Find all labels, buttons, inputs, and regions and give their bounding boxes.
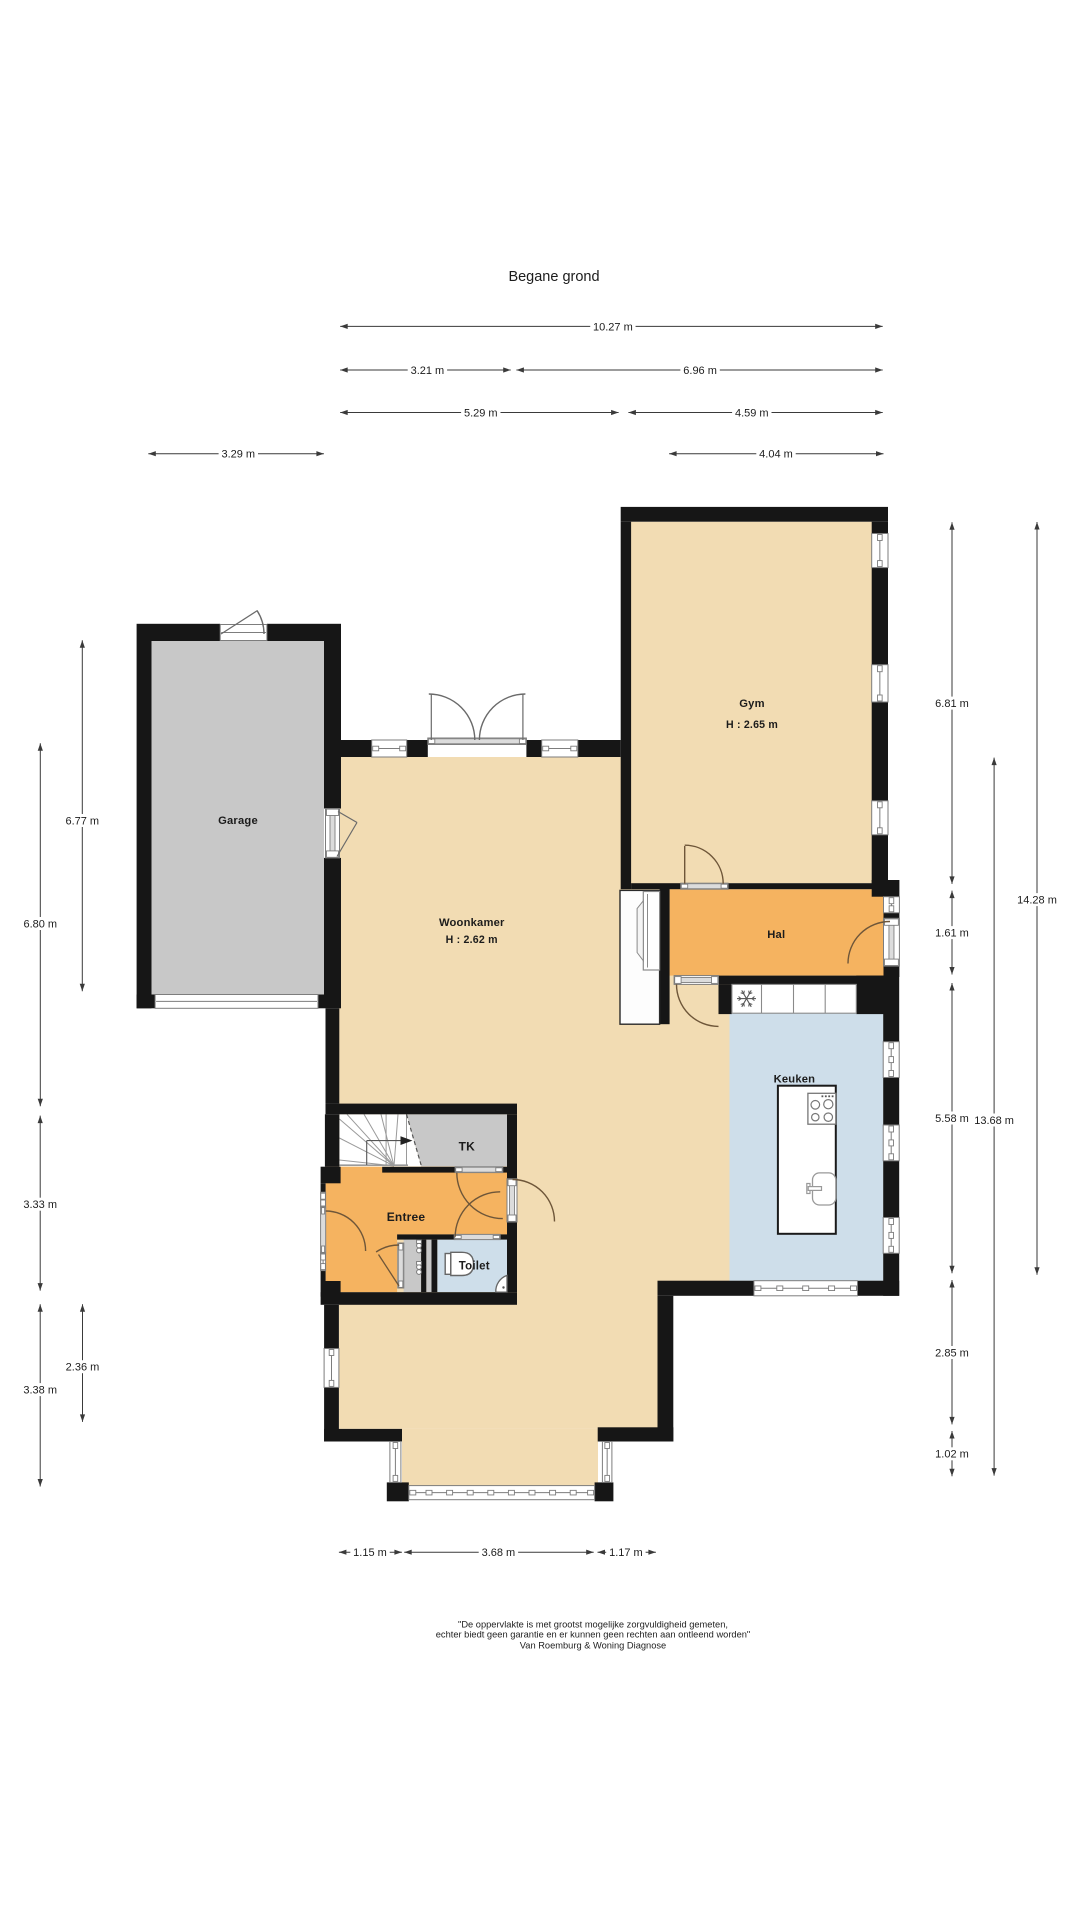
- svg-text:5.29 m: 5.29 m: [464, 407, 498, 419]
- svg-text:3.33 m: 3.33 m: [23, 1199, 57, 1211]
- svg-text:6.80 m: 6.80 m: [23, 918, 57, 930]
- svg-text:TK: TK: [459, 1139, 476, 1153]
- svg-text:Begane grond: Begane grond: [508, 269, 599, 285]
- svg-text:4.04 m: 4.04 m: [759, 449, 793, 461]
- svg-text:2.36 m: 2.36 m: [66, 1362, 100, 1374]
- svg-text:6.96 m: 6.96 m: [683, 365, 717, 377]
- svg-text:"De oppervlakte is met grootst: "De oppervlakte is met grootst mogelijke…: [458, 1620, 728, 1630]
- svg-text:3.29 m: 3.29 m: [221, 449, 255, 461]
- svg-text:6.77 m: 6.77 m: [65, 815, 99, 827]
- svg-text:Van Roemburg & Woning Diagnose: Van Roemburg & Woning Diagnose: [520, 1640, 666, 1650]
- svg-text:1.15 m: 1.15 m: [353, 1547, 387, 1559]
- svg-text:1.17 m: 1.17 m: [609, 1547, 643, 1559]
- svg-text:3.68 m: 3.68 m: [482, 1547, 516, 1559]
- svg-text:4.59 m: 4.59 m: [735, 407, 769, 419]
- svg-text:3.21 m: 3.21 m: [411, 365, 445, 377]
- svg-text:H : 2.62 m: H : 2.62 m: [446, 934, 498, 946]
- svg-text:2.85 m: 2.85 m: [935, 1347, 969, 1359]
- svg-text:3.38 m: 3.38 m: [23, 1385, 57, 1397]
- svg-text:Gym: Gym: [739, 698, 764, 710]
- svg-text:Woonkamer: Woonkamer: [439, 917, 505, 929]
- svg-text:1.02 m: 1.02 m: [935, 1449, 969, 1461]
- svg-text:1.61 m: 1.61 m: [935, 928, 969, 940]
- svg-text:10.27 m: 10.27 m: [593, 321, 633, 333]
- svg-text:5.58 m: 5.58 m: [935, 1113, 969, 1125]
- svg-text:14.28 m: 14.28 m: [1017, 895, 1057, 907]
- svg-text:Toilet: Toilet: [459, 1261, 490, 1273]
- svg-text:13.68 m: 13.68 m: [974, 1115, 1014, 1127]
- svg-text:Hal: Hal: [767, 929, 785, 941]
- svg-text:6.81 m: 6.81 m: [935, 698, 969, 710]
- svg-text:H : 2.65 m: H : 2.65 m: [726, 719, 778, 731]
- svg-text:echter biedt geen garantie en: echter biedt geen garantie en er kunnen …: [436, 1629, 750, 1639]
- svg-text:Entree: Entree: [387, 1210, 426, 1224]
- svg-text:Keuken: Keuken: [774, 1074, 816, 1086]
- svg-text:Garage: Garage: [218, 815, 258, 827]
